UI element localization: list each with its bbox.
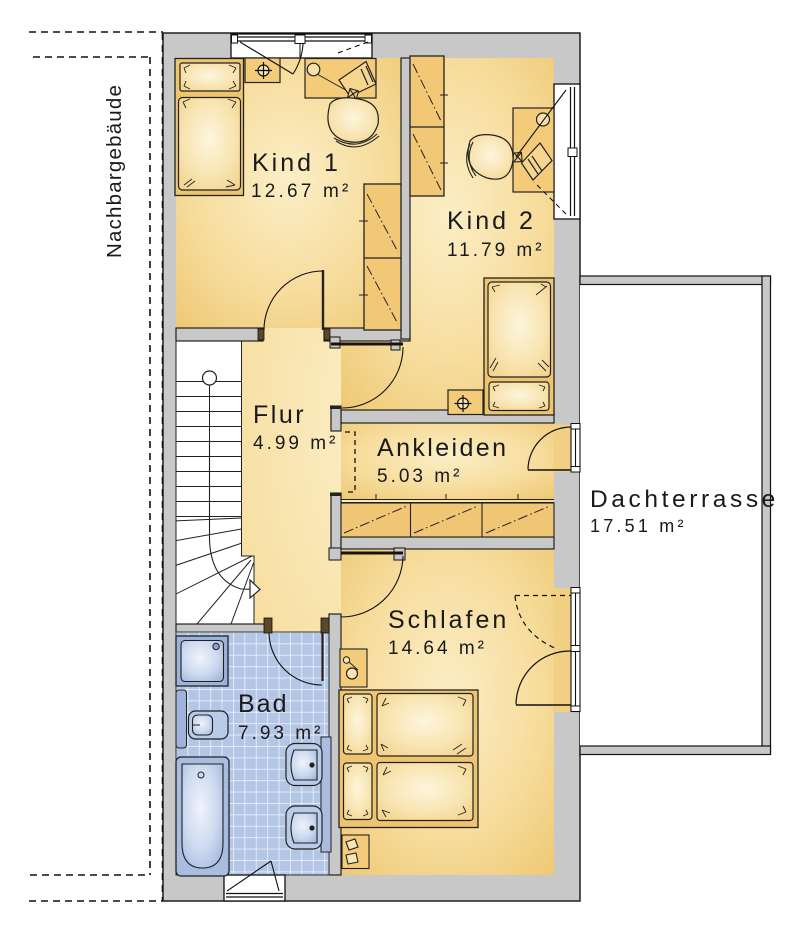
svg-text:Kind 1: Kind 1 <box>252 149 341 177</box>
svg-text:7.93 m²: 7.93 m² <box>238 723 323 744</box>
svg-text:Kind 2: Kind 2 <box>447 207 536 235</box>
svg-text:Ankleiden: Ankleiden <box>377 434 508 462</box>
svg-text:11.79 m²: 11.79 m² <box>447 240 545 261</box>
svg-text:Flur: Flur <box>253 401 306 429</box>
svg-text:4.99 m²: 4.99 m² <box>253 433 338 454</box>
svg-text:Bad: Bad <box>238 690 288 718</box>
svg-text:5.03 m²: 5.03 m² <box>377 466 462 487</box>
svg-text:Nachbargebäude: Nachbargebäude <box>103 84 126 258</box>
svg-text:12.67 m²: 12.67 m² <box>251 181 352 202</box>
svg-text:17.51 m²: 17.51 m² <box>590 516 687 536</box>
svg-text:Schlafen: Schlafen <box>388 606 509 634</box>
svg-text:14.64 m²: 14.64 m² <box>388 638 487 659</box>
svg-text:Dachterrasse: Dachterrasse <box>590 486 779 513</box>
